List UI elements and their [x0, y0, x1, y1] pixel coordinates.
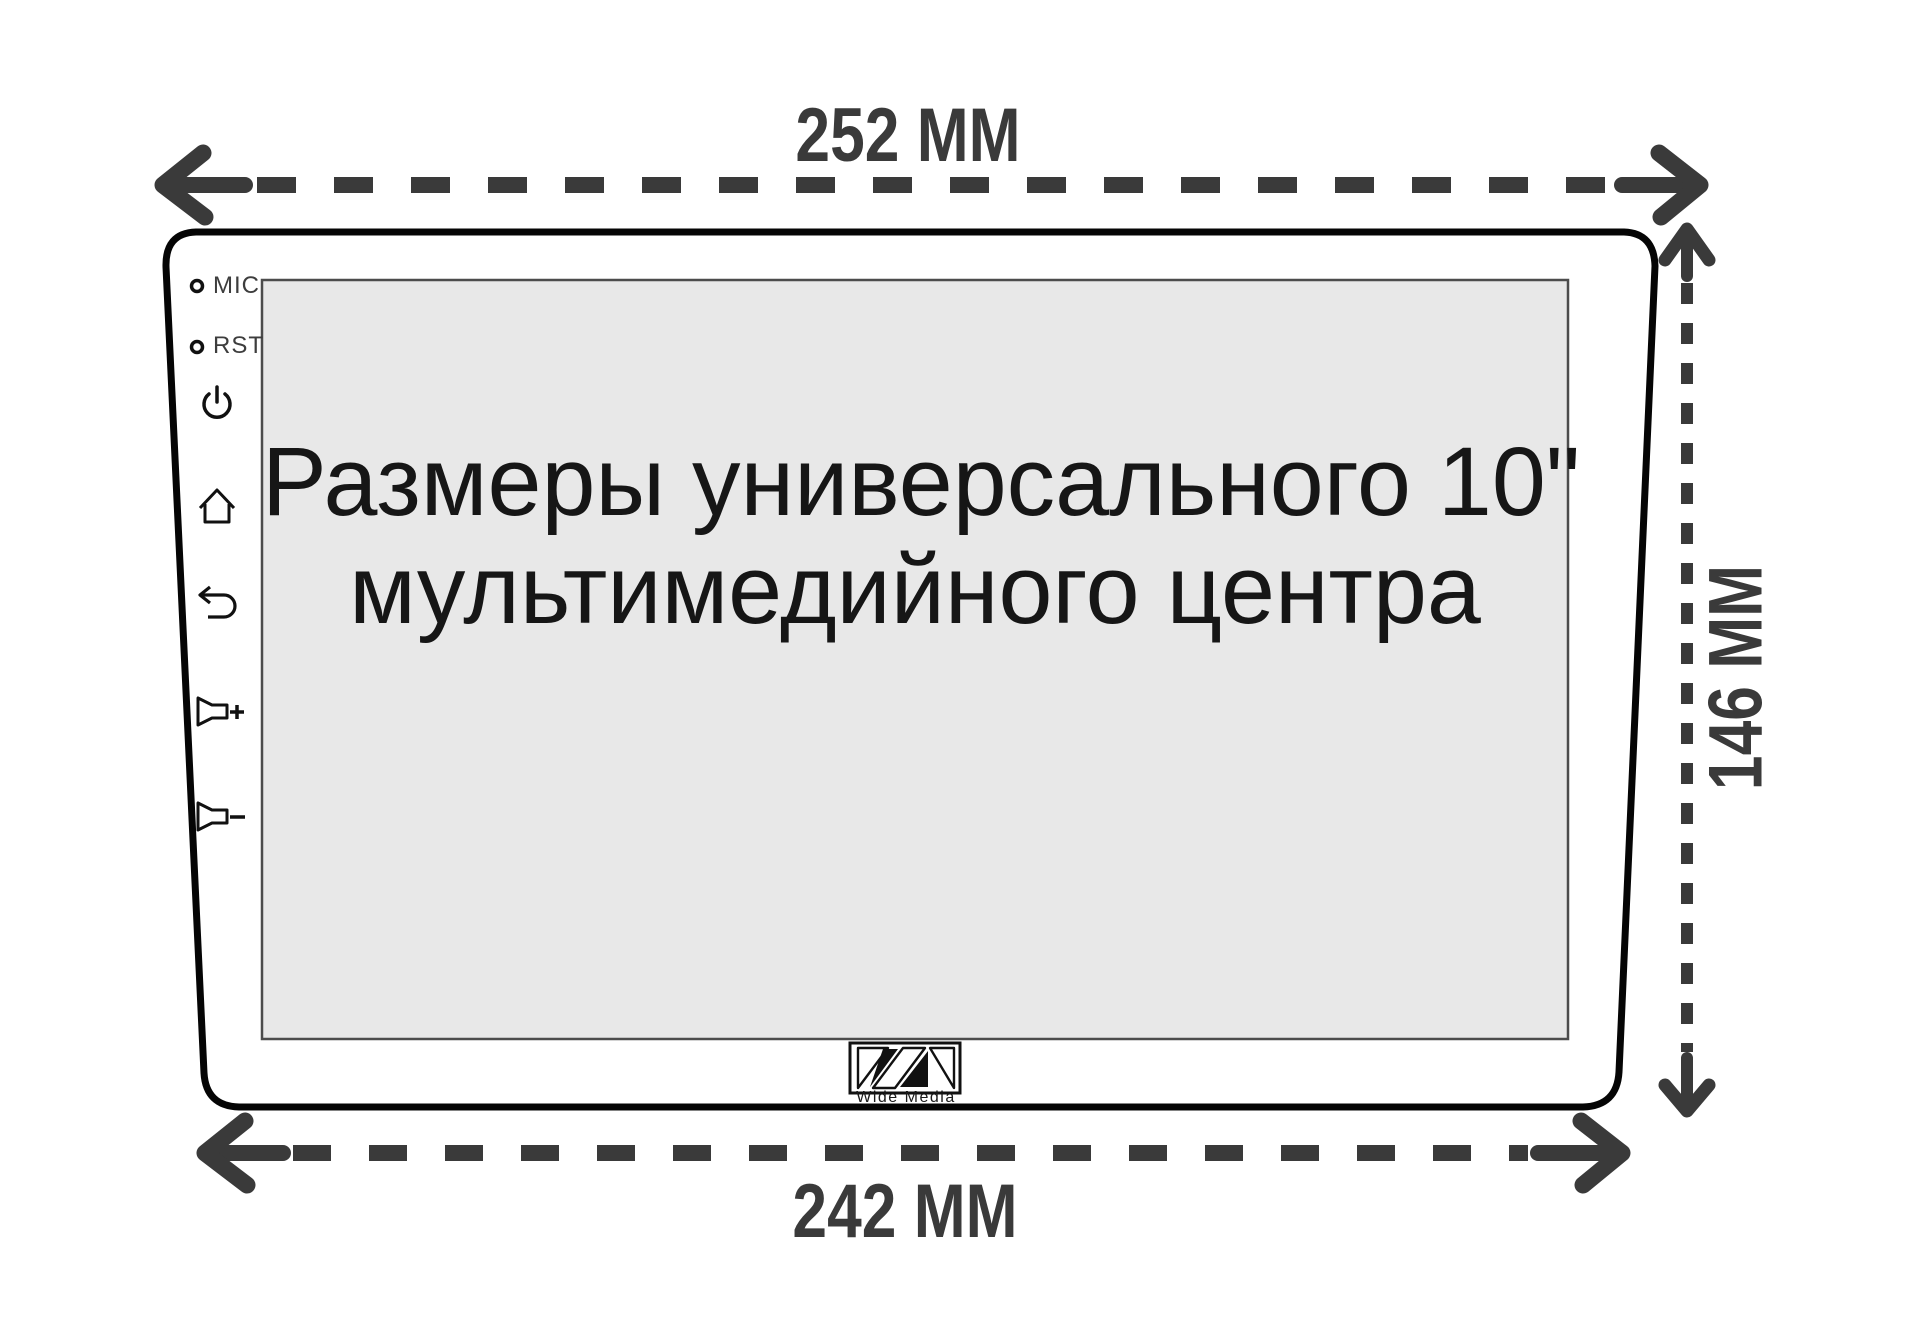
diagram-artwork [0, 0, 1920, 1333]
top-dimension-label: 252 MM [744, 92, 1072, 179]
mic-label: MIC [213, 272, 260, 300]
right-dimension-label: 146 MM [1693, 514, 1780, 842]
rst-label: RST [213, 332, 264, 360]
bottom-dimension-label: 242 MM [741, 1168, 1069, 1255]
screen-caption-line2: мультимедийного центра [262, 536, 1568, 644]
screen-panel [262, 280, 1568, 1039]
dimension-diagram: 252 MM 242 MM 146 MM Размеры универсальн… [0, 0, 1920, 1333]
wm-logo-icon [850, 1043, 960, 1093]
brand-logo-text: Wide Media [848, 1089, 964, 1107]
screen-caption: Размеры универсального 10" мультимедийно… [262, 428, 1568, 644]
screen-caption-line1: Размеры универсального 10" [262, 428, 1568, 536]
